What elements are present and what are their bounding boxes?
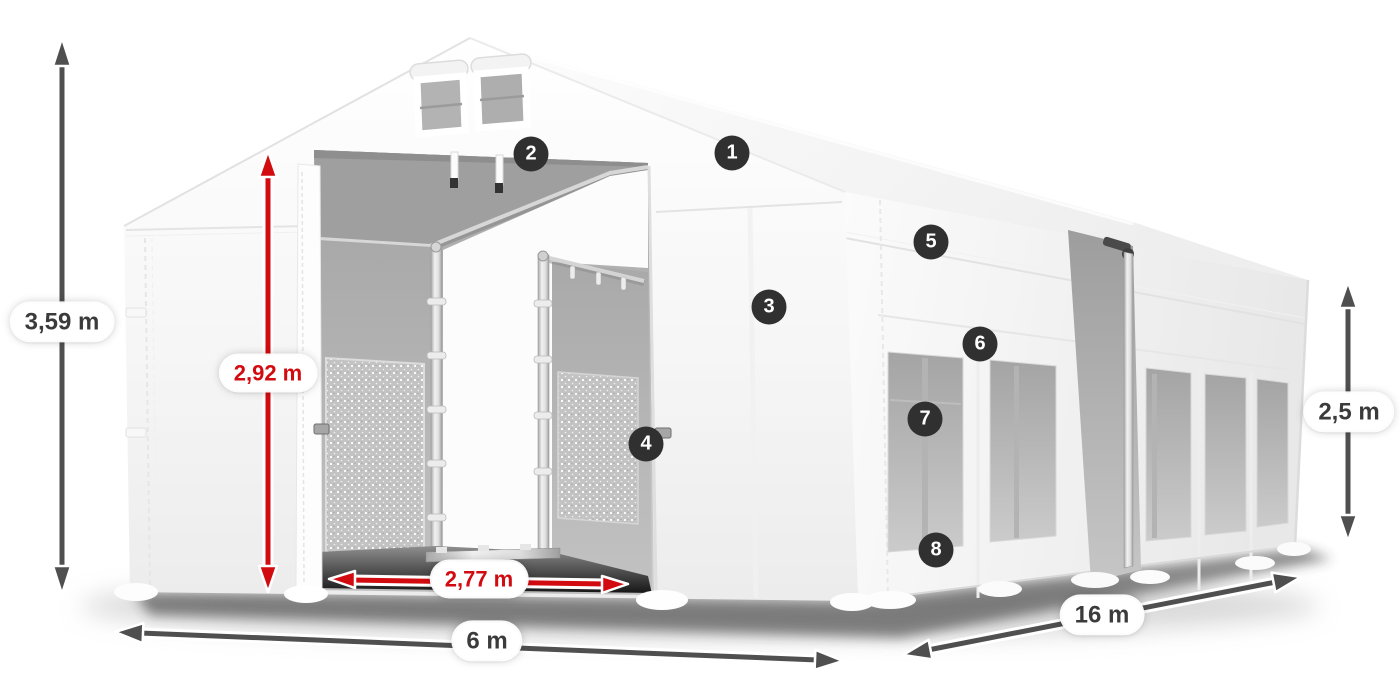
- side-window-2: [990, 360, 1056, 542]
- wall-strap: [126, 428, 146, 437]
- dimension-label-total-height: 3,59 m: [12, 303, 113, 340]
- side-window-3: [1146, 368, 1191, 541]
- feature-marker-5[interactable]: 5: [914, 225, 949, 260]
- tent-illustration: [0, 0, 1400, 700]
- dimension-label-width: 6 m: [453, 622, 520, 659]
- dimension-label-entrance-width: 2,77 m: [432, 561, 527, 596]
- side-window-4: [1205, 374, 1246, 535]
- interior-mesh-panel-left: [326, 358, 424, 560]
- side-window-1: [888, 352, 963, 552]
- interior-mesh-panel-right: [558, 372, 638, 524]
- feature-marker-2[interactable]: 2: [514, 137, 549, 172]
- product-dimension-diagram: 3,59 m 2,92 m 2,77 m 6 m 16 m 2,5 m 1 2 …: [0, 0, 1400, 700]
- tent-side-wall: [845, 192, 1311, 609]
- feature-marker-7[interactable]: 7: [908, 402, 943, 437]
- feature-marker-8[interactable]: 8: [919, 533, 954, 568]
- side-entrance-pole: [1124, 252, 1133, 568]
- dimension-label-side-height: 2,5 m: [1305, 393, 1392, 430]
- dimension-label-entrance-height: 2,92 m: [221, 355, 316, 390]
- feature-marker-3[interactable]: 3: [752, 290, 787, 325]
- feature-marker-4[interactable]: 4: [629, 427, 664, 462]
- dimension-label-length: 16 m: [1062, 596, 1143, 633]
- feature-marker-6[interactable]: 6: [963, 327, 998, 362]
- front-entrance-opening: [314, 150, 654, 594]
- feature-marker-1[interactable]: 1: [715, 136, 750, 171]
- wall-strap: [126, 308, 146, 317]
- side-window-5: [1257, 379, 1288, 527]
- door-handle-left: [314, 424, 329, 434]
